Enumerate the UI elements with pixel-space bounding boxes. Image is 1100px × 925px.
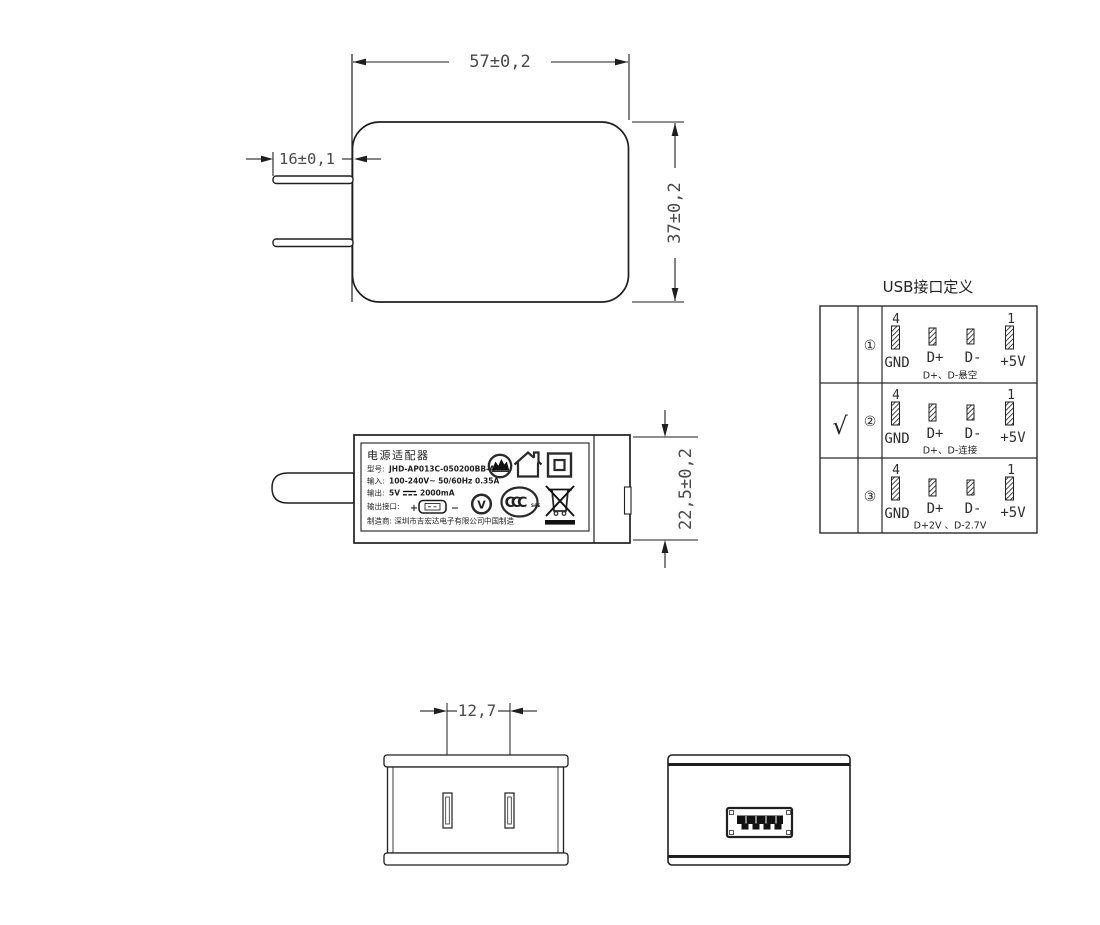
- adapter-drawing-svg: 57±0,2 16±0,1 37±0,2: [0, 0, 1100, 925]
- prong-slot-left: [443, 793, 452, 828]
- arrowhead-right: [615, 59, 628, 66]
- row-note: D+、D-悬空: [923, 370, 978, 382]
- plus5v-label: +5V: [1000, 505, 1026, 521]
- dim-depth-22-5: 22,5±0,2: [633, 410, 698, 568]
- port-key: 输出接口:: [367, 501, 400, 511]
- pin4-label: 4: [892, 388, 900, 403]
- usb-contact: [775, 824, 782, 830]
- minus-sign: −: [451, 503, 459, 514]
- pin-dminus: [967, 329, 974, 344]
- plus5v-label: +5V: [1000, 354, 1026, 370]
- output-voltage: 5V: [389, 489, 400, 498]
- pin-dplus: [929, 404, 936, 421]
- usb-contact: [753, 824, 760, 830]
- model-key: 型号:: [367, 465, 385, 474]
- usb-port-edge: [625, 487, 632, 514]
- row-number: ②: [864, 414, 877, 430]
- prong-dim-text: 16±0,1: [279, 150, 335, 168]
- prong-bottom: [273, 239, 353, 247]
- output-key: 输出:: [367, 488, 385, 498]
- usb-pin-table: USB接口定义 ① 4 1 GND D+ D- +5V D+、D-悬空 √ ② …: [820, 278, 1037, 533]
- dim-height-37: 37±0,2: [632, 122, 685, 302]
- prong-slot-right: [505, 793, 514, 828]
- output-current: 2000mA: [420, 489, 455, 498]
- dplus-label: D+: [927, 501, 944, 517]
- pin1-label: 1: [1007, 463, 1015, 478]
- pin-gnd: [892, 477, 900, 500]
- plug-face-body: [388, 767, 564, 853]
- plug-face-view: 12,7: [384, 701, 568, 865]
- arrowhead-right-tip: [434, 708, 447, 715]
- adapter-body-front: [353, 122, 629, 302]
- prong-side: [272, 473, 354, 503]
- gnd-label: GND: [884, 355, 909, 371]
- gnd-label: GND: [884, 431, 909, 447]
- ccc-sub-text: S&E: [531, 503, 541, 508]
- gnd-label: GND: [884, 506, 909, 522]
- arrowhead-up: [672, 123, 679, 136]
- usb-face-view: [668, 755, 850, 865]
- dplus-label: D+: [927, 426, 944, 442]
- row-note: D+、D-连接: [923, 445, 978, 457]
- pin-dplus: [929, 479, 936, 496]
- pin4-label: 4: [892, 463, 900, 478]
- arrowhead-down: [672, 288, 679, 301]
- dplus-label: D+: [927, 350, 944, 366]
- front-view: 57±0,2 16±0,1 37±0,2: [246, 52, 685, 302]
- model-value: JHD-AP013C-050200BB-A: [388, 465, 495, 474]
- pin-dminus: [967, 405, 974, 420]
- bottom-cap: [384, 853, 568, 865]
- pin1-label: 1: [1007, 388, 1015, 403]
- top-cap: [384, 755, 568, 767]
- pin-gnd: [892, 402, 900, 425]
- pin-5v: [1006, 326, 1014, 349]
- dim-width-57: 57±0,2: [353, 52, 629, 120]
- row-number: ③: [864, 489, 877, 505]
- made-in-text: 中国制造: [484, 516, 514, 526]
- usb-receptacle: [727, 808, 792, 837]
- label-title: 电源适配器: [367, 448, 430, 462]
- pin1-label: 1: [1007, 312, 1015, 327]
- arrowhead-right-tip: [261, 156, 273, 163]
- depth-dim-text: 22,5±0,2: [676, 448, 696, 530]
- prong-top: [273, 176, 353, 184]
- table-row-3: ③ 4 1 GND D+ D- +5V D+2V 、D-2.7V: [864, 463, 1026, 532]
- manufacturer-text: 制造商: 深圳市吉宏达电子有限公司: [367, 516, 484, 526]
- selected-checkmark: √: [832, 412, 848, 440]
- pin4-label: 4: [892, 312, 900, 327]
- arrowhead-left-tip: [510, 708, 523, 715]
- side-view: 电源适配器 型号: JHD-AP013C-050200BB-A 输入: 100-…: [272, 410, 698, 568]
- usb-plug-icon: [419, 501, 446, 514]
- dminus-label: D-: [965, 426, 982, 442]
- plus-sign: +: [410, 503, 418, 514]
- usb-contact: [742, 824, 749, 830]
- input-key: 输入:: [367, 476, 385, 486]
- pin-gnd: [892, 326, 900, 349]
- pin-dminus: [967, 480, 974, 495]
- pin-5v: [1006, 477, 1014, 500]
- dminus-label: D-: [965, 350, 982, 366]
- usb-contact: [764, 824, 771, 830]
- row-number: ①: [864, 338, 877, 354]
- arrowhead-up: [662, 540, 669, 553]
- width-dim-text: 57±0,2: [469, 52, 530, 72]
- usb-table-title: USB接口定义: [883, 278, 974, 296]
- label-plate: 电源适配器 型号: JHD-AP013C-050200BB-A 输入: 100-…: [361, 443, 589, 531]
- dminus-label: D-: [965, 501, 982, 517]
- pin-5v: [1006, 402, 1014, 425]
- technical-drawing-page: 57±0,2 16±0,1 37±0,2: [0, 0, 1100, 925]
- height-dim-text: 37±0,2: [665, 182, 685, 243]
- table-row-2: √ ② 4 1 GND D+ D- +5V D+、D-连接: [832, 388, 1026, 457]
- efficiency-letter: V: [477, 499, 486, 512]
- arrowhead-down: [662, 424, 669, 437]
- table-row-1: ① 4 1 GND D+ D- +5V D+、D-悬空: [864, 312, 1026, 382]
- arrowhead-left: [353, 59, 366, 66]
- weee-bar: [545, 520, 575, 525]
- input-value: 100-240V~ 50/60Hz 0.35A: [389, 477, 499, 486]
- row-note: D+2V 、D-2.7V: [914, 521, 987, 532]
- pin-dplus: [929, 328, 936, 345]
- plus5v-label: +5V: [1000, 430, 1026, 446]
- pitch-dim-text: 12,7: [458, 701, 497, 720]
